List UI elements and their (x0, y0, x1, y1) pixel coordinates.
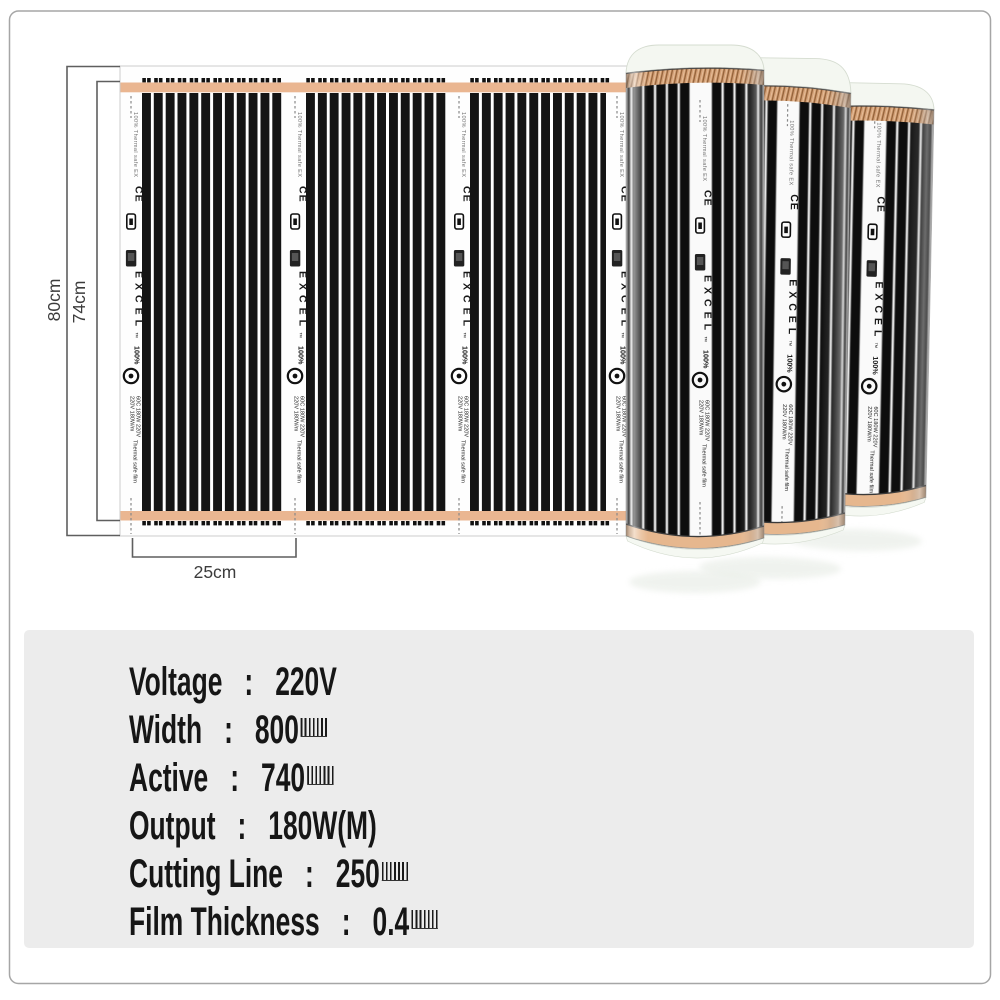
svg-text:74cm: 74cm (69, 281, 89, 324)
svg-text:25cm: 25cm (194, 562, 237, 582)
svg-text:80cm: 80cm (44, 279, 64, 322)
